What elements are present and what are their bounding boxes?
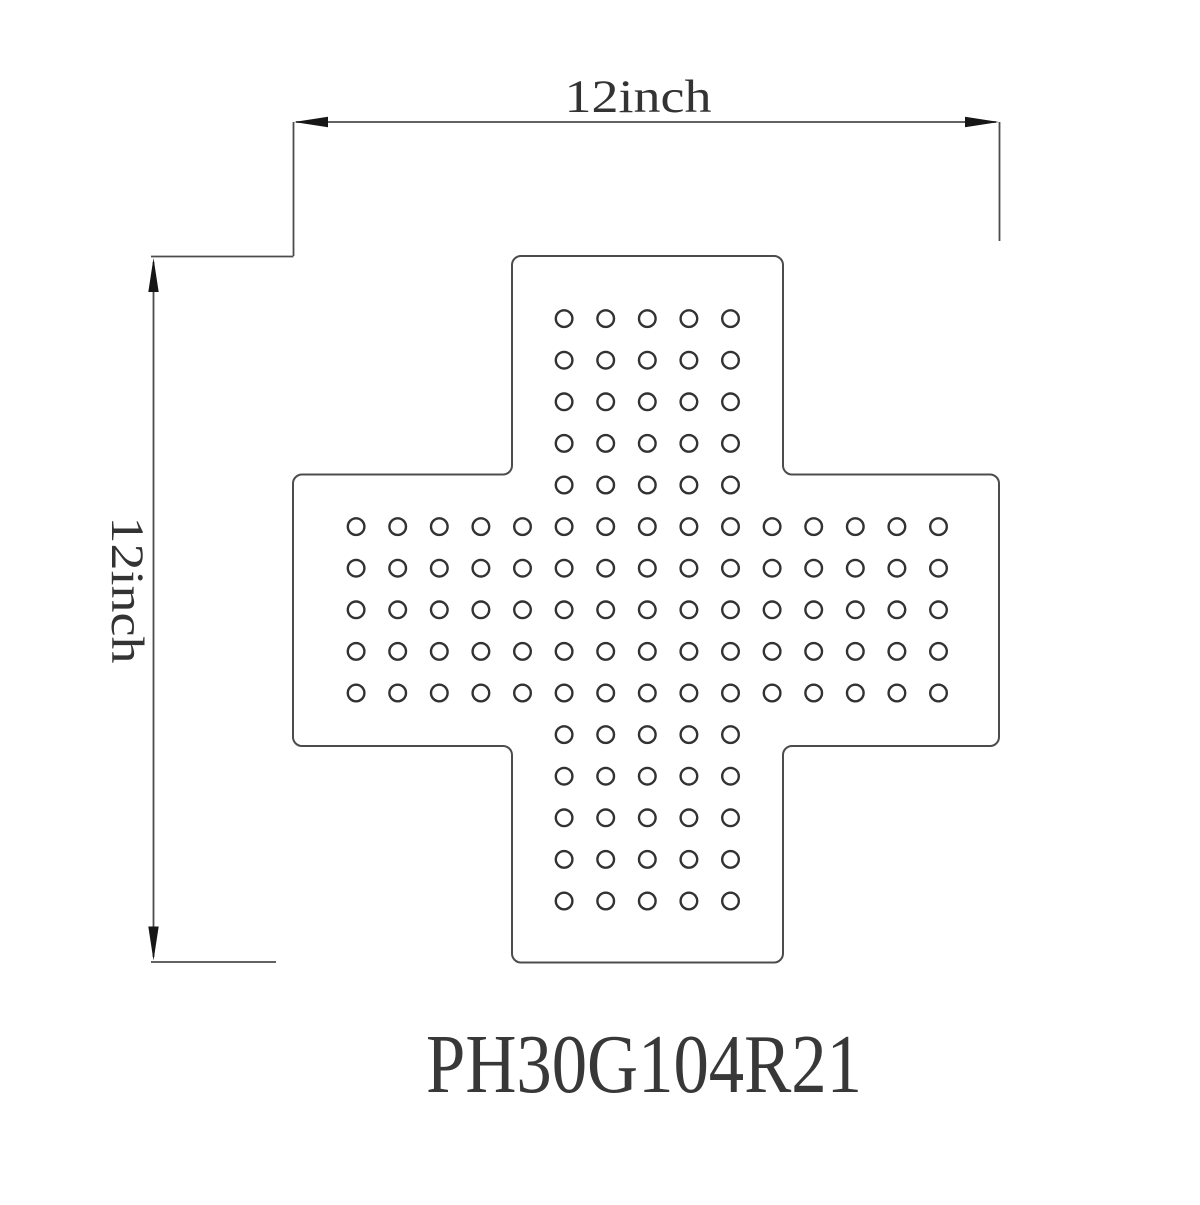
svg-text:PH30G104R21: PH30G104R21 [426, 1018, 862, 1111]
svg-text:12inch: 12inch [101, 517, 153, 664]
svg-text:12inch: 12inch [565, 71, 712, 123]
